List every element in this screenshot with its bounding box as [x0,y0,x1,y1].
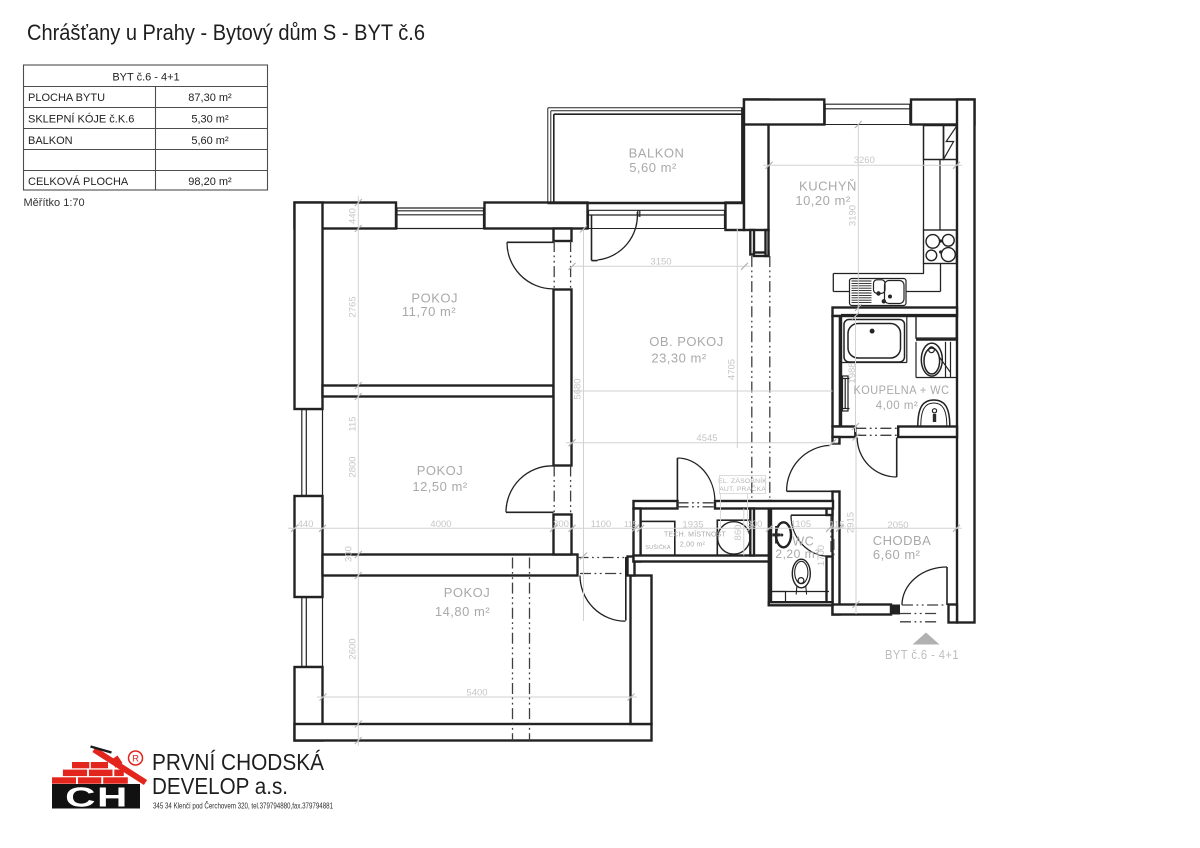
svg-text:5,60 m²: 5,60 m² [191,135,229,147]
svg-text:2,20 m²: 2,20 m² [775,547,819,561]
svg-text:10,20 m²: 10,20 m² [795,193,850,208]
svg-text:POKOJ: POKOJ [417,463,464,478]
svg-text:BALKON: BALKON [629,146,685,161]
svg-text:12,50 m²: 12,50 m² [412,479,467,494]
svg-text:98,20 m²: 98,20 m² [188,176,232,188]
svg-text:POKOJ: POKOJ [444,585,491,600]
svg-text:6,60 m²: 6,60 m² [873,547,921,562]
svg-text:EL. ZÁSOBNÍK: EL. ZÁSOBNÍK [718,476,767,485]
svg-text:440: 440 [298,519,314,530]
svg-text:87,30 m²: 87,30 m² [188,92,232,104]
svg-text:Chrášťany u Prahy - Bytový dům: Chrášťany u Prahy - Bytový dům S - BYT č… [27,20,425,45]
svg-text:PRVNÍ CHODSKÁ: PRVNÍ CHODSKÁ [152,749,325,775]
svg-text:3150: 3150 [650,257,671,268]
svg-text:4000: 4000 [430,519,451,530]
svg-text:1105: 1105 [791,519,811,530]
svg-text:Měřítko 1:70: Měřítko 1:70 [24,197,85,209]
svg-text:23,30 m²: 23,30 m² [651,351,706,366]
svg-text:CELKOVÁ PLOCHA: CELKOVÁ PLOCHA [28,175,129,188]
svg-text:5,30 m²: 5,30 m² [191,114,229,126]
svg-text:5,60 m²: 5,60 m² [629,160,677,175]
svg-text:BYT č.6 - 4+1: BYT č.6 - 4+1 [112,72,179,84]
svg-text:BALKON: BALKON [28,135,73,147]
svg-text:KUCHYŇ: KUCHYŇ [799,179,857,194]
svg-text:R: R [132,753,139,764]
svg-text:SUŠIČKA: SUŠIČKA [645,544,671,551]
svg-text:2,00 m²: 2,00 m² [680,541,706,548]
svg-text:300: 300 [553,519,569,530]
svg-text:CHODBA: CHODBA [873,533,932,548]
svg-text:115: 115 [829,520,844,531]
svg-text:5400: 5400 [466,688,487,699]
svg-text:11,70 m²: 11,70 m² [402,304,457,319]
svg-text:2600: 2600 [348,638,359,659]
svg-text:OB. POKOJ: OB. POKOJ [649,334,724,349]
svg-text:300: 300 [344,546,355,562]
svg-text:345 34 Klenčí pod Čerchovem 32: 345 34 Klenčí pod Čerchovem 320, tel.379… [153,801,333,811]
svg-text:115: 115 [348,416,359,431]
svg-text:CH: CH [65,781,129,812]
svg-text:4545: 4545 [696,433,717,444]
svg-text:TECH. MÍSTNOST: TECH. MÍSTNOST [664,530,726,539]
svg-text:DEVELOP a.s.: DEVELOP a.s. [152,773,288,799]
svg-text:1988: 1988 [847,362,858,383]
svg-text:4,00 m²: 4,00 m² [876,400,919,412]
svg-text:BYT č.6 - 4+1: BYT č.6 - 4+1 [885,648,959,662]
svg-text:4705: 4705 [727,359,738,380]
svg-text:POKOJ: POKOJ [411,290,458,305]
svg-text:1100: 1100 [591,519,611,530]
svg-text:KOUPELNA + WC: KOUPELNA + WC [854,385,950,397]
svg-text:14,80 m²: 14,80 m² [435,604,490,619]
svg-text:PLOCHA BYTU: PLOCHA BYTU [28,92,105,104]
svg-text:440: 440 [348,208,359,224]
svg-text:2050: 2050 [887,520,908,531]
svg-text:115: 115 [624,520,637,529]
svg-text:3260: 3260 [854,155,875,166]
svg-text:2915: 2915 [845,512,856,533]
svg-text:300: 300 [747,519,763,530]
svg-text:2800: 2800 [348,456,359,477]
svg-text:SKLEPNÍ KÓJE č.K.6: SKLEPNÍ KÓJE č.K.6 [28,113,134,126]
svg-text:5680: 5680 [573,378,584,399]
svg-text:1935: 1935 [682,520,703,531]
svg-text:860: 860 [733,525,744,541]
svg-text:2765: 2765 [348,296,359,317]
svg-text:AUT. PRAČKA: AUT. PRAČKA [719,484,766,493]
